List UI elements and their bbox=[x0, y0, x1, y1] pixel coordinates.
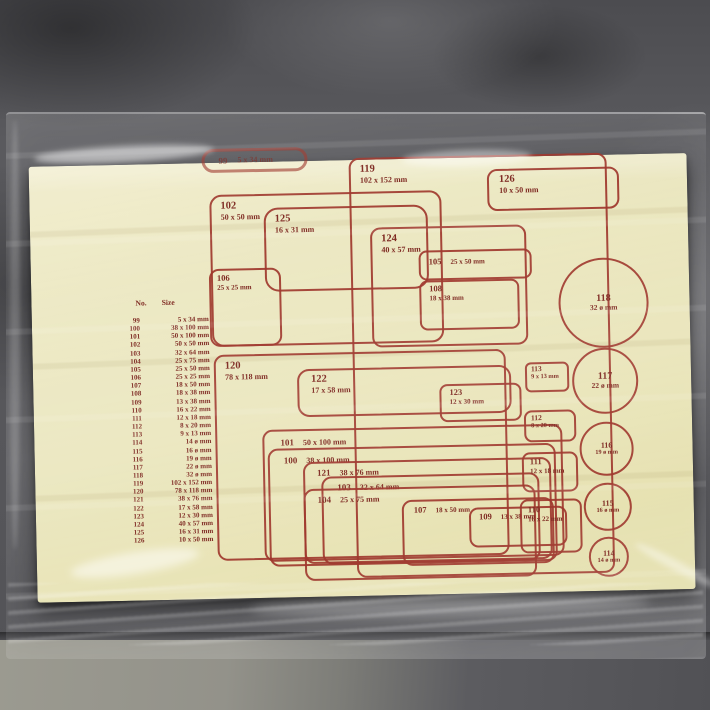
size-number: 102 bbox=[220, 200, 236, 212]
size-dims: 10 x 50 mm bbox=[499, 185, 539, 195]
size-number: 107 bbox=[414, 506, 427, 516]
size-list-header-no: No. bbox=[135, 298, 146, 307]
outline-circle-118: 118 32 ø mm bbox=[558, 257, 650, 349]
size-dims: 25 x 25 mm bbox=[217, 283, 252, 292]
size-dims: 50 x 50 mm bbox=[221, 212, 261, 222]
size-number: 99 bbox=[218, 156, 227, 166]
outline-circle-117: 117 22 ø mm bbox=[572, 347, 639, 414]
size-dims: 12 x 18 mm bbox=[530, 466, 565, 475]
size-dims: 16 x 22 mm bbox=[528, 514, 563, 523]
size-number: 105 bbox=[429, 257, 442, 267]
size-number: 125 bbox=[275, 213, 291, 225]
outline-99: 99 5 x 34 mm bbox=[201, 147, 307, 173]
outline-108: 108 18 x 38 mm bbox=[419, 279, 520, 331]
size-dims: 50 x 100 mm bbox=[303, 436, 347, 447]
size-number: 124 bbox=[381, 233, 397, 245]
photo-scene: 119 102 x 152 mm 120 78 x 118 mm 101 50 … bbox=[0, 0, 710, 710]
size-dims: 16 x 31 mm bbox=[275, 225, 315, 235]
outline-111: 111 12 x 18 mm bbox=[522, 451, 579, 492]
size-list-size: 10 x 50 mm bbox=[151, 535, 213, 544]
outline-110: 110 16 x 22 mm bbox=[520, 498, 583, 553]
outline-113: 113 9 x 13 mm bbox=[525, 362, 570, 393]
size-number: 112 bbox=[531, 414, 542, 423]
size-dims: 25 x 50 mm bbox=[450, 256, 485, 266]
size-dims: 18 x 38 mm bbox=[429, 293, 464, 302]
outline-126: 126 10 x 50 mm bbox=[487, 166, 620, 211]
size-dims: 9 x 13 mm bbox=[531, 373, 559, 381]
size-number: 108 bbox=[429, 284, 442, 294]
size-dims: 18 x 50 mm bbox=[436, 505, 471, 515]
size-list: No. Size 99 5 x 34 mm 100 38 x 100 mm bbox=[117, 296, 258, 545]
size-number: 100 bbox=[284, 455, 298, 465]
size-number: 123 bbox=[449, 388, 462, 398]
size-dims: 102 x 152 mm bbox=[360, 175, 408, 185]
outline-circle-116: 116 19 ø mm bbox=[579, 421, 634, 476]
size-number: 122 bbox=[311, 374, 327, 386]
size-list-no: 126 bbox=[122, 537, 144, 546]
size-dims: 5 x 34 mm bbox=[237, 155, 273, 165]
size-number: 126 bbox=[499, 174, 515, 186]
outline-circle-115: 115 16 ø mm bbox=[583, 482, 632, 531]
printed-template: 119 102 x 152 mm 120 78 x 118 mm 101 50 … bbox=[0, 0, 710, 710]
size-number: 119 bbox=[360, 164, 375, 176]
size-number: 101 bbox=[280, 437, 294, 447]
size-dims: 14 ø mm bbox=[598, 557, 621, 564]
size-dims: 22 ø mm bbox=[591, 382, 619, 391]
size-number: 104 bbox=[318, 495, 332, 505]
size-dims: 25 x 75 mm bbox=[340, 494, 380, 505]
size-dims: 16 ø mm bbox=[597, 507, 620, 514]
size-number: 110 bbox=[528, 505, 540, 515]
size-dims: 32 ø mm bbox=[590, 304, 618, 313]
outline-112: 112 8 x 20 mm bbox=[524, 409, 577, 442]
size-dims: 17 x 58 mm bbox=[311, 385, 351, 395]
size-number: 106 bbox=[217, 274, 230, 284]
outline-123: 123 12 x 30 mm bbox=[439, 383, 522, 423]
size-dims: 12 x 30 mm bbox=[450, 397, 485, 406]
size-list-header-size: Size bbox=[162, 298, 175, 307]
size-dims: 19 ø mm bbox=[595, 449, 618, 456]
outline-105: 105 25 x 50 mm bbox=[418, 248, 532, 280]
outline-circle-114: 114 14 ø mm bbox=[588, 536, 629, 577]
size-number: 111 bbox=[530, 457, 542, 467]
size-list-rows: 99 5 x 34 mm 100 38 x 100 mm 101 50 x 10… bbox=[118, 314, 259, 545]
size-dims: 40 x 57 mm bbox=[381, 244, 421, 254]
label-sheet-group: 119 102 x 152 mm 120 78 x 118 mm 101 50 … bbox=[0, 0, 710, 710]
size-number: 113 bbox=[531, 365, 542, 374]
size-list-header: No. Size bbox=[117, 296, 253, 308]
size-number: 109 bbox=[479, 512, 492, 522]
size-dims: 8 x 20 mm bbox=[531, 422, 559, 430]
